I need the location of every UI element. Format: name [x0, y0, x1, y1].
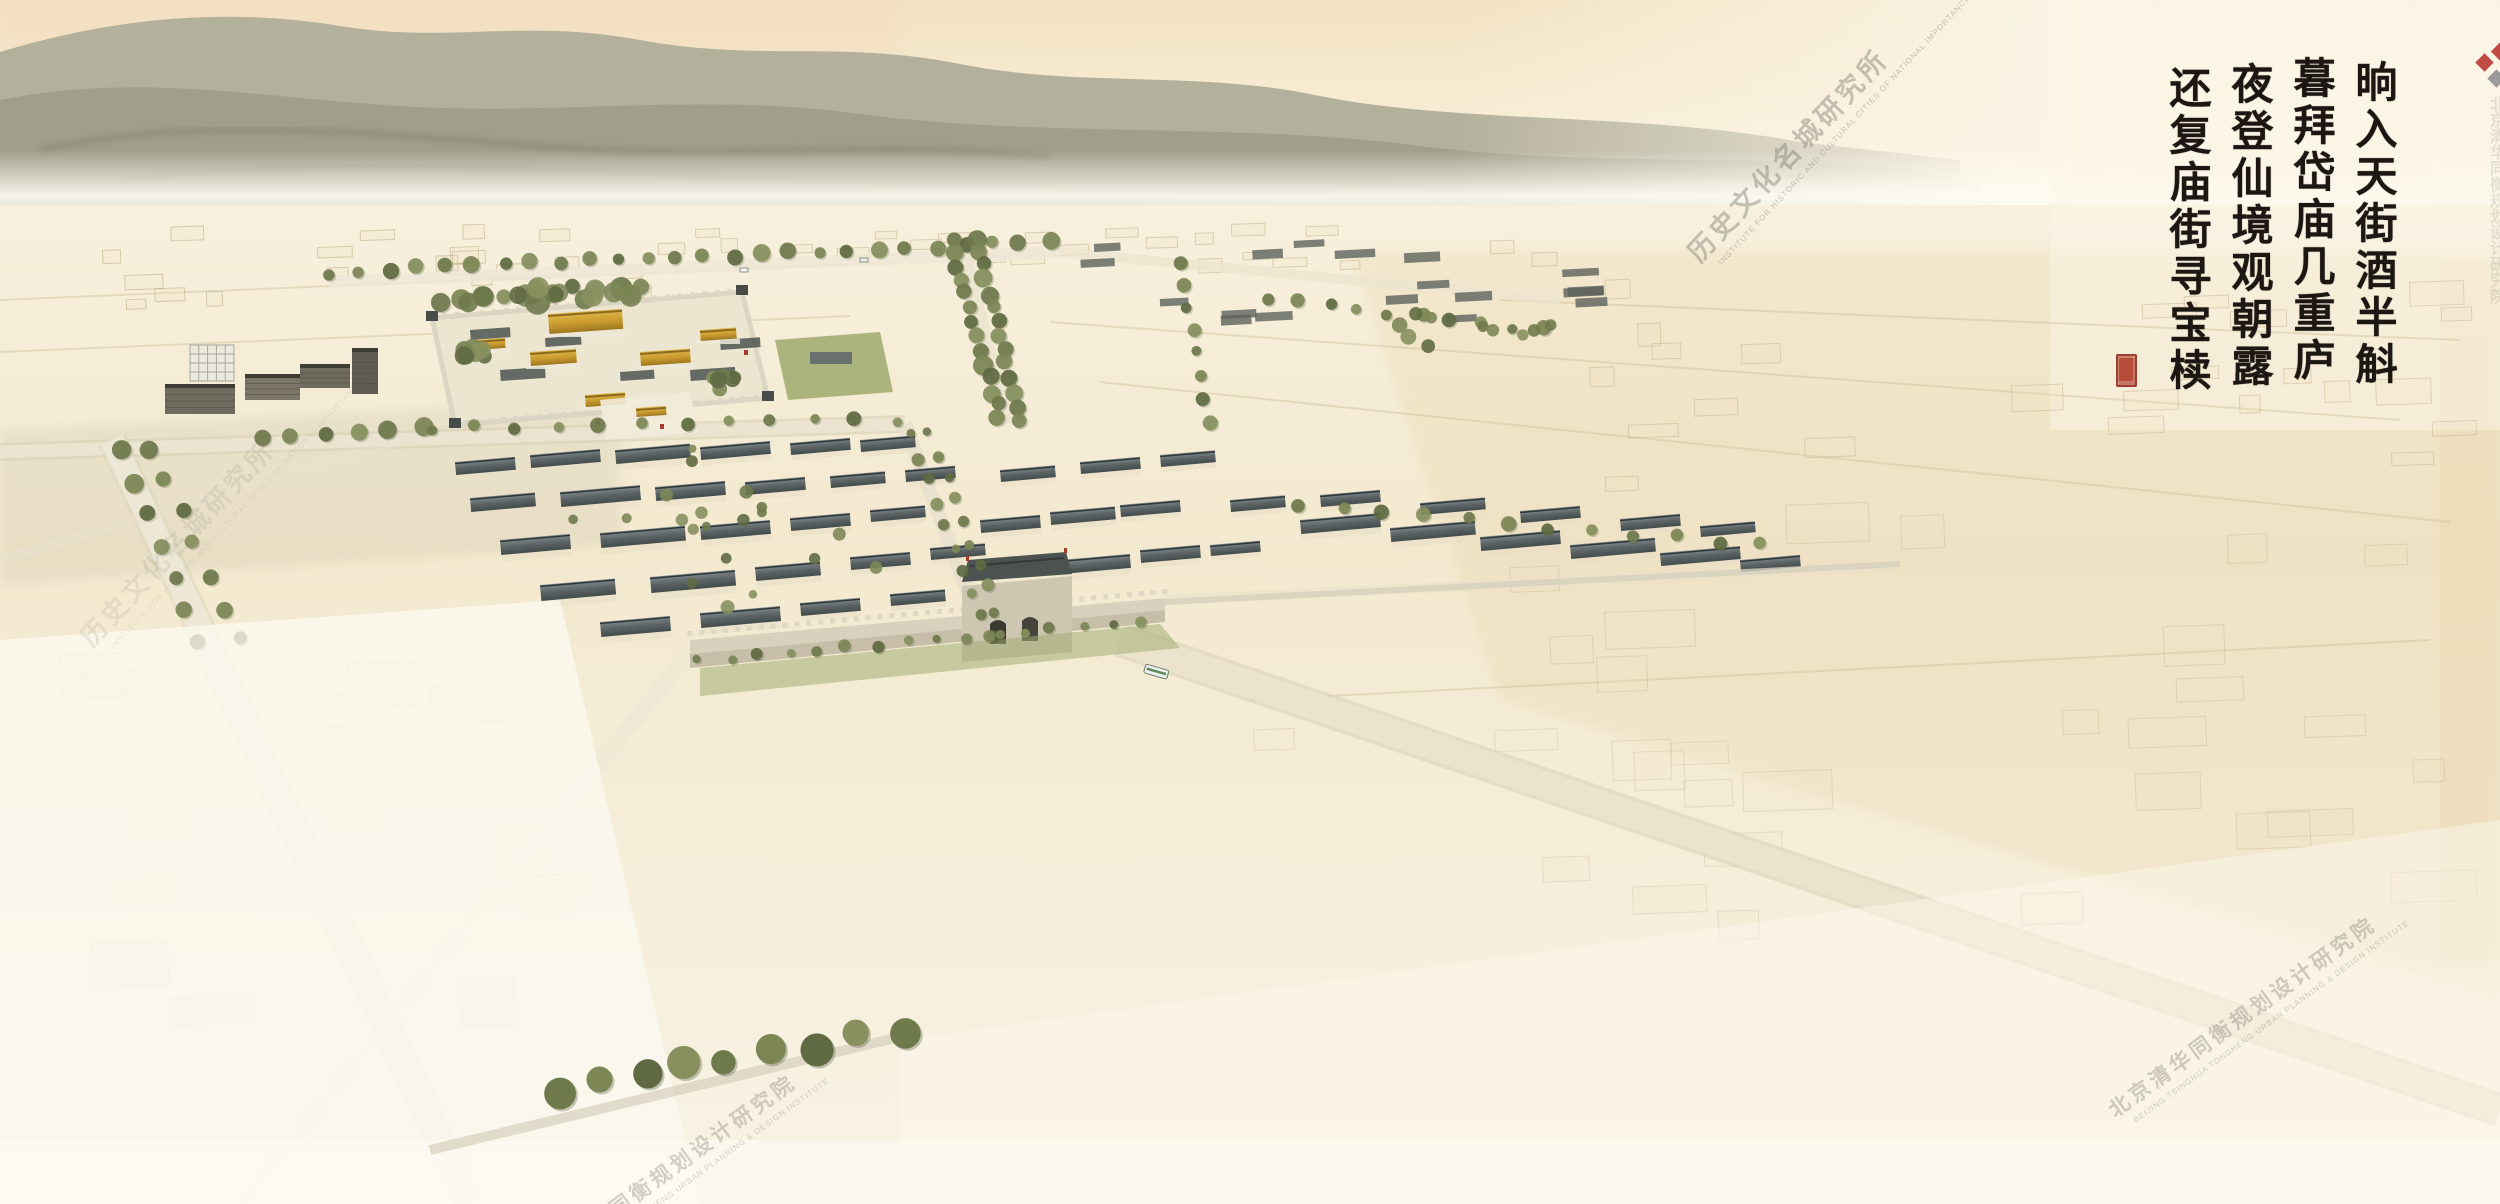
crenellation	[445, 385, 449, 389]
tree	[756, 1034, 786, 1064]
old-roof	[1417, 280, 1450, 290]
sketch-block	[126, 299, 146, 309]
tree	[1507, 324, 1517, 334]
tree	[686, 455, 698, 467]
poem-column-1: 晌入天街酒半斛	[2352, 60, 2394, 389]
tree	[740, 485, 754, 499]
tree	[749, 590, 758, 599]
crenellation	[794, 622, 799, 627]
crenellation	[763, 382, 767, 386]
tree	[458, 292, 478, 312]
red-flag	[1064, 548, 1067, 553]
sketch-block	[1490, 240, 1514, 254]
sketch-block	[2176, 677, 2244, 702]
sketch-block	[1684, 779, 1733, 807]
tree	[977, 256, 991, 270]
sketch-block	[206, 291, 222, 306]
poem-column-3: 夜登仙境观朝露	[2228, 62, 2270, 391]
tree	[1174, 256, 1188, 270]
tree	[964, 315, 978, 329]
sketch-block	[1340, 260, 1360, 269]
tree	[1177, 278, 1192, 293]
tree	[723, 415, 733, 425]
tree	[810, 414, 820, 424]
crenellation	[771, 624, 776, 629]
tree	[688, 524, 699, 535]
crenellation	[1115, 593, 1120, 598]
crenellation	[878, 614, 883, 619]
tree	[1381, 310, 1392, 321]
tree	[1753, 537, 1765, 549]
sketch-block	[1628, 423, 1678, 438]
sketch-block	[2062, 709, 2098, 734]
tree	[996, 630, 1005, 639]
tree	[496, 289, 511, 304]
crenellation	[688, 631, 693, 636]
crenellation	[749, 323, 753, 327]
sketch-block	[1195, 233, 1213, 245]
tree	[1000, 370, 1017, 387]
tree	[686, 578, 697, 589]
crenellation	[783, 623, 788, 628]
tree	[1005, 384, 1023, 402]
tree	[964, 540, 974, 550]
old-roof	[1455, 291, 1492, 302]
old-roof	[1386, 294, 1419, 305]
tree	[112, 440, 131, 459]
sketch-block	[1550, 635, 1594, 664]
poem-column-4: 还复庙街寻宝椟	[2166, 66, 2208, 395]
sketch-block	[1254, 728, 1295, 750]
poem-column-2: 暮拜岱庙几重庐	[2290, 56, 2332, 385]
corner-turret	[762, 391, 774, 401]
tree	[586, 1067, 612, 1093]
tree	[1517, 329, 1528, 340]
tree	[872, 641, 884, 653]
crenellation	[818, 619, 823, 624]
tree	[711, 1050, 735, 1074]
crenellation	[438, 350, 442, 354]
annex-hall	[810, 352, 852, 364]
sketch-block	[2304, 715, 2365, 738]
crenellation	[742, 396, 746, 400]
tree	[351, 424, 368, 441]
tree	[622, 513, 632, 523]
tree	[992, 396, 1006, 410]
tree	[961, 633, 972, 644]
old-roof	[1221, 314, 1252, 325]
crenellation	[730, 397, 734, 401]
tree	[1021, 629, 1030, 638]
sketch-block	[318, 246, 353, 258]
crenellation	[517, 307, 521, 311]
tree	[870, 561, 883, 574]
crenellation	[666, 294, 670, 298]
tree	[554, 257, 568, 271]
tree	[427, 425, 437, 435]
tree	[1713, 537, 1727, 551]
sketch-block	[1532, 252, 1558, 266]
tree	[923, 427, 931, 435]
crenellation	[913, 611, 918, 616]
tree	[987, 300, 1000, 313]
scene-illustration	[0, 0, 2500, 1204]
crenellation	[442, 313, 446, 317]
old-roof	[1252, 249, 1283, 260]
tree	[1042, 232, 1060, 250]
tree	[695, 506, 708, 519]
sketch-block	[2236, 811, 2311, 849]
tree	[838, 639, 851, 652]
tree	[544, 1078, 576, 1110]
crenellation	[440, 362, 444, 366]
sketch-block	[1273, 258, 1307, 268]
corner-turret	[736, 285, 748, 295]
crenellation	[489, 418, 493, 422]
tree	[992, 313, 1008, 329]
crenellation	[706, 399, 710, 403]
tree	[930, 498, 943, 511]
tree	[968, 327, 984, 343]
tree	[1421, 339, 1435, 353]
crenellation	[1163, 589, 1168, 594]
crenellation	[566, 303, 570, 307]
sketch-block	[463, 224, 485, 239]
tree	[988, 409, 1005, 426]
tree	[1009, 234, 1025, 250]
crenellation	[759, 625, 764, 630]
tree	[989, 608, 999, 618]
crenellation	[504, 308, 508, 312]
sketch-block	[1741, 343, 1780, 364]
tree	[660, 488, 673, 501]
crenellation	[760, 370, 764, 374]
tree	[811, 646, 822, 657]
tree	[1195, 370, 1207, 382]
tree	[710, 371, 727, 388]
crenellation	[1139, 591, 1144, 596]
sketch-block	[2128, 716, 2207, 748]
tree	[890, 1018, 921, 1049]
tree	[728, 655, 737, 664]
sketch-block	[2364, 544, 2407, 566]
tree	[963, 300, 977, 314]
sketch-block	[2239, 395, 2260, 413]
tree	[907, 429, 916, 438]
rendering-stage: 晌入天街酒半斛 暮拜岱庙几重庐 夜登仙境观朝露 还复庙街寻宝椟 历史文化名城研究…	[0, 0, 2500, 1204]
tree	[437, 258, 452, 273]
tree	[814, 247, 825, 258]
tree	[737, 514, 749, 526]
tree	[976, 609, 987, 620]
tree	[843, 1020, 869, 1046]
temple-lawn	[775, 332, 893, 400]
tree	[871, 241, 888, 258]
tree	[779, 242, 796, 259]
tree	[1586, 524, 1597, 535]
tree	[702, 522, 711, 531]
crenellation	[746, 312, 750, 316]
crenellation	[435, 338, 439, 342]
tree	[695, 249, 709, 263]
car	[740, 268, 748, 272]
tree	[175, 601, 191, 617]
red-door	[744, 350, 748, 355]
tree	[897, 241, 911, 255]
sketch-block	[1605, 476, 1638, 491]
tree	[500, 257, 512, 269]
tree	[568, 514, 578, 524]
sketch-block	[2227, 534, 2267, 564]
tree	[473, 341, 490, 358]
tree	[124, 474, 144, 494]
crenellation	[443, 373, 447, 377]
crenellation	[723, 628, 728, 633]
crenellation	[537, 414, 541, 418]
tree	[468, 419, 480, 431]
sketch-block	[1632, 884, 1707, 914]
crenellation	[806, 621, 811, 626]
sketch-block	[1901, 515, 1945, 549]
red-seal-icon	[2116, 354, 2137, 387]
tree	[933, 451, 945, 463]
tree	[912, 453, 925, 466]
sketch-block	[2409, 281, 2464, 307]
crenellation	[525, 415, 529, 419]
crenellation	[549, 413, 553, 417]
crenellation	[703, 291, 707, 295]
tree	[431, 293, 450, 312]
tree	[923, 473, 934, 484]
crenellation	[480, 310, 484, 314]
tree	[408, 258, 423, 273]
sketch-block	[2413, 759, 2445, 782]
car	[860, 258, 868, 262]
tree	[757, 502, 768, 513]
tree	[904, 635, 913, 644]
tree	[983, 630, 995, 642]
tree	[1463, 512, 1474, 523]
tree	[383, 263, 399, 279]
tree	[1627, 530, 1639, 542]
tree	[1545, 319, 1557, 331]
crenellation	[1103, 594, 1108, 599]
tree	[967, 588, 977, 598]
sketch-block	[1605, 609, 1696, 649]
sketch-block	[1638, 323, 1661, 346]
tree	[846, 411, 861, 426]
tree	[727, 250, 743, 266]
corner-turret	[449, 418, 461, 428]
tree	[323, 269, 334, 280]
tree	[590, 418, 605, 433]
tree	[140, 441, 158, 459]
tree	[1671, 529, 1684, 542]
corner-turret	[426, 311, 438, 321]
tree	[983, 368, 1000, 385]
tree	[139, 505, 155, 521]
crenellation	[678, 293, 682, 297]
crenellation	[455, 312, 459, 316]
crenellation	[735, 627, 740, 632]
tree	[1203, 415, 1218, 430]
tree	[938, 519, 950, 531]
tree	[1501, 516, 1517, 532]
tree	[1188, 323, 1202, 337]
old-roof	[1567, 286, 1604, 297]
crenellation	[585, 410, 589, 414]
tree	[668, 251, 681, 264]
crenellation	[492, 309, 496, 313]
sketch-block	[1106, 228, 1138, 238]
crenellation	[949, 608, 954, 613]
old-roof	[1404, 251, 1441, 263]
crenellation	[715, 290, 719, 294]
tree	[676, 514, 688, 526]
tree	[509, 286, 527, 304]
tree	[203, 569, 219, 585]
tree	[1425, 312, 1437, 324]
sketch-block	[1597, 656, 1648, 693]
tree	[554, 422, 565, 433]
tree	[1541, 523, 1553, 535]
tree	[636, 417, 648, 429]
tree	[463, 256, 480, 273]
crenellation	[501, 417, 505, 421]
sketch-block	[1306, 226, 1338, 236]
tree	[956, 565, 968, 577]
sketch-block	[102, 250, 120, 264]
tree	[945, 473, 955, 483]
tree	[688, 445, 696, 453]
crenellation	[711, 629, 716, 634]
wash-bottom-strip	[0, 1140, 2500, 1204]
tree	[1012, 413, 1027, 428]
crenellation	[718, 398, 722, 402]
crenellation	[754, 395, 758, 399]
crenellation	[728, 289, 732, 293]
crenellation	[653, 295, 657, 299]
sketch-block	[125, 274, 164, 290]
sketch-block	[1146, 237, 1178, 249]
tree	[1196, 392, 1210, 406]
tree	[681, 418, 695, 432]
sketch-block	[1786, 502, 1870, 544]
old-roof	[1575, 297, 1607, 308]
crenellation	[866, 615, 871, 620]
tree	[893, 417, 903, 427]
sketch-block	[1612, 739, 1672, 781]
tree	[763, 414, 775, 426]
watermark-right-edge: 北京清华同衡规划设计研究院	[2484, 96, 2500, 304]
tree	[958, 516, 969, 527]
crenellation	[573, 411, 577, 415]
red-door	[660, 424, 664, 429]
tree	[1416, 507, 1431, 522]
tree	[930, 241, 946, 257]
tree	[156, 471, 171, 486]
sketch-block	[1694, 398, 1738, 416]
tree	[1442, 313, 1457, 328]
tree	[949, 492, 961, 504]
sketch-block	[1605, 279, 1630, 299]
sketch-block	[360, 230, 394, 241]
crenellation	[937, 609, 942, 614]
tree	[352, 267, 363, 278]
sketch-block	[1805, 437, 1856, 458]
crenellation	[925, 610, 930, 615]
crenellation	[889, 613, 894, 618]
tree	[667, 1046, 700, 1079]
tree	[527, 277, 549, 299]
sketch-block	[1590, 367, 1615, 387]
tree	[582, 251, 597, 266]
sketch-block	[2391, 452, 2433, 466]
tree	[521, 253, 537, 269]
tree	[582, 285, 603, 306]
tree	[692, 655, 700, 663]
tree	[809, 553, 820, 564]
tree	[996, 353, 1012, 369]
crenellation	[842, 617, 847, 622]
tree	[1487, 324, 1499, 336]
tree	[1339, 502, 1351, 514]
crenellation	[699, 630, 704, 635]
tree	[613, 253, 624, 264]
sketch-block	[2011, 384, 2063, 412]
tree	[1326, 298, 1337, 309]
tree	[1400, 329, 1416, 345]
tree	[1528, 324, 1541, 337]
crenellation	[561, 412, 565, 416]
tree	[604, 282, 624, 302]
sketch-block	[1495, 729, 1558, 752]
tree	[378, 421, 397, 440]
crenellation	[433, 326, 437, 330]
tree	[1351, 304, 1362, 315]
sketch-block	[1652, 343, 1681, 360]
sketch-block	[2441, 307, 2472, 321]
sketch-block	[696, 229, 720, 238]
sketch-block	[2108, 416, 2164, 434]
tree	[1291, 499, 1305, 513]
tree	[1181, 303, 1192, 314]
sketch-block	[2163, 625, 2225, 667]
sketch-block	[1231, 223, 1265, 236]
crenellation	[1127, 592, 1132, 597]
crenellation	[694, 400, 698, 404]
crenellation	[830, 618, 835, 623]
sketch-block	[540, 229, 570, 242]
tree	[1080, 622, 1089, 631]
old-roof	[1094, 243, 1121, 253]
sketch-block	[155, 288, 185, 302]
tree	[508, 423, 520, 435]
sketch-block	[171, 226, 204, 241]
tree	[753, 244, 771, 262]
crenellation	[513, 416, 517, 420]
tree	[1135, 616, 1146, 627]
tree	[633, 1059, 662, 1088]
tree	[974, 268, 993, 287]
crenellation	[757, 359, 761, 363]
tree	[946, 244, 964, 262]
sketch-block	[875, 231, 897, 239]
crenellation	[1151, 590, 1156, 595]
tree	[1409, 307, 1422, 320]
sketch-block	[2432, 420, 2476, 436]
crenellation	[690, 292, 694, 296]
